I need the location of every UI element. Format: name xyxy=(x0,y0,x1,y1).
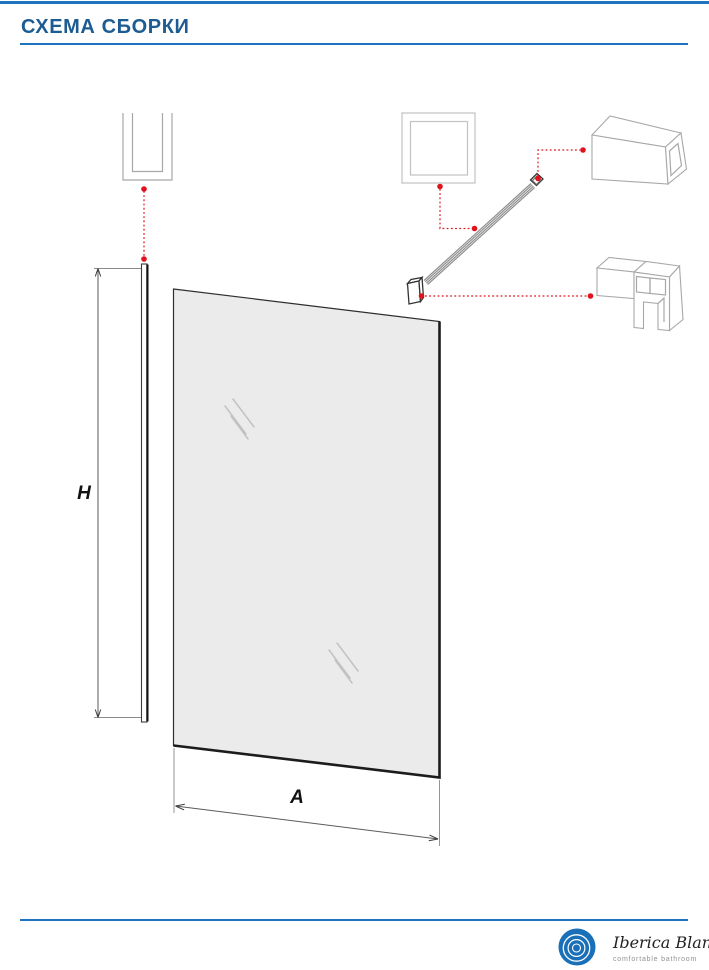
wall-mount-end-box-icon xyxy=(592,116,687,184)
height-dimension-label: H xyxy=(77,483,92,504)
support-bar-glass-clamp xyxy=(408,278,424,305)
support-bar xyxy=(408,174,544,305)
brand-name: Iberica Blanca xyxy=(613,933,703,952)
glass-panel xyxy=(174,289,440,778)
leader-lines xyxy=(144,150,588,296)
glass-clamp-bracket-icon xyxy=(597,258,683,331)
bottom-divider xyxy=(20,919,688,921)
leader-dots xyxy=(141,147,593,299)
height-dimension: H xyxy=(77,269,141,718)
square-profile-section-icon xyxy=(402,113,475,183)
assembly-diagram: H A xyxy=(0,0,709,970)
leader-bar-top xyxy=(538,150,580,176)
wall-profile-strip xyxy=(142,264,148,722)
width-dimension-label: A xyxy=(289,787,304,808)
assembly-scheme-page: СХЕМА СБОРКИ xyxy=(0,0,709,970)
brand-tagline: comfortable bathroom xyxy=(613,956,708,963)
logo-rings-icon xyxy=(559,929,596,966)
leader-square-profile xyxy=(440,189,472,229)
u-channel-wall-profile-icon xyxy=(123,113,172,180)
